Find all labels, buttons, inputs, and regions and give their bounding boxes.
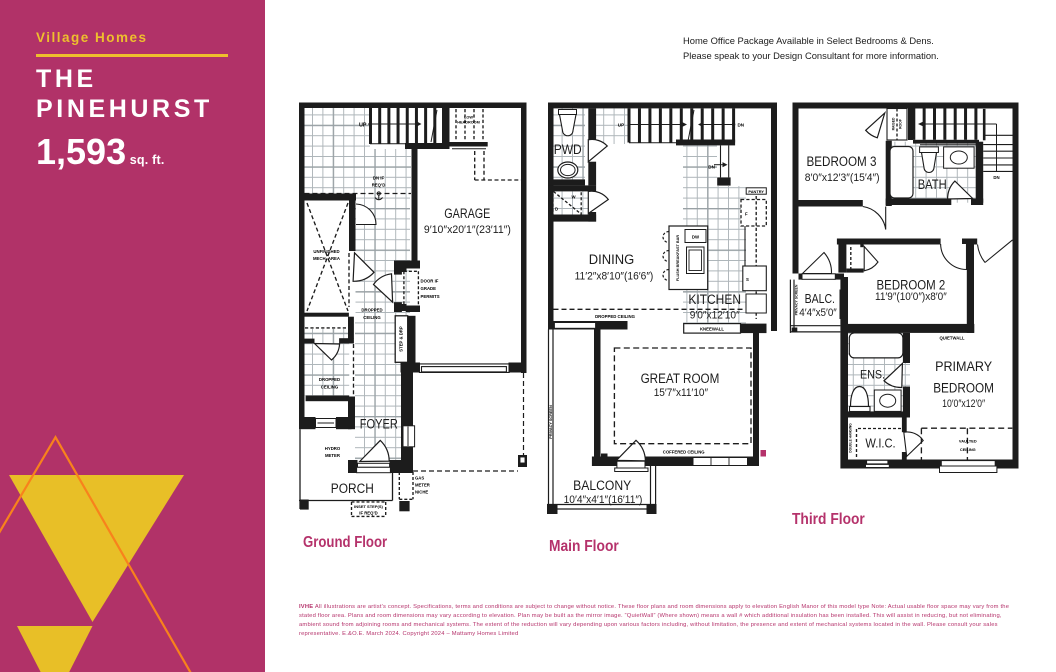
svg-text:BATH: BATH bbox=[918, 177, 947, 192]
svg-text:4′4″x5′0″: 4′4″x5′0″ bbox=[799, 307, 837, 319]
svg-text:ROOF: ROOF bbox=[899, 119, 903, 129]
svg-text:IF REQ’D: IF REQ’D bbox=[359, 511, 377, 516]
svg-text:D: D bbox=[555, 207, 558, 212]
svg-text:11′9″(10′0″)x8′0″: 11′9″(10′0″)x8′0″ bbox=[875, 291, 947, 303]
svg-text:FLUSH BREAKFAST BAR: FLUSH BREAKFAST BAR bbox=[676, 235, 680, 281]
svg-text:RAISED: RAISED bbox=[892, 117, 896, 130]
svg-text:UNFINISHED: UNFINISHED bbox=[313, 249, 339, 254]
svg-text:DN: DN bbox=[993, 175, 999, 180]
svg-text:LOW: LOW bbox=[464, 116, 473, 120]
svg-text:9′0″x12′10″: 9′0″x12′10″ bbox=[690, 310, 740, 322]
svg-text:S: S bbox=[746, 277, 749, 282]
svg-text:DOOR IF: DOOR IF bbox=[421, 278, 439, 283]
svg-text:DOUBLE HANGING: DOUBLE HANGING bbox=[849, 423, 853, 453]
svg-text:DN: DN bbox=[708, 165, 715, 170]
svg-text:GRADE: GRADE bbox=[421, 286, 437, 291]
svg-text:10′4″x4′1″(16′11″): 10′4″x4′1″(16′11″) bbox=[564, 494, 643, 506]
svg-text:CEILING: CEILING bbox=[363, 315, 381, 320]
svg-text:UP: UP bbox=[359, 123, 367, 129]
svg-text:PRIMARY: PRIMARY bbox=[935, 359, 992, 374]
svg-text:GAS: GAS bbox=[415, 476, 424, 481]
svg-text:UP: UP bbox=[618, 123, 624, 128]
svg-text:NICHE: NICHE bbox=[415, 490, 428, 495]
svg-text:QUIETWALL: QUIETWALL bbox=[939, 336, 964, 341]
svg-text:VAULTED: VAULTED bbox=[959, 439, 977, 444]
svg-text:DW: DW bbox=[692, 235, 700, 240]
svg-text:KITCHEN: KITCHEN bbox=[688, 292, 741, 307]
svg-text:BALC.: BALC. bbox=[805, 292, 835, 306]
svg-text:F: F bbox=[745, 212, 748, 217]
svg-text:MECH. AREA: MECH. AREA bbox=[313, 256, 340, 261]
svg-text:INSET STEP(S): INSET STEP(S) bbox=[354, 504, 383, 509]
svg-text:DROPPED: DROPPED bbox=[361, 308, 382, 313]
svg-text:GARAGE: GARAGE bbox=[444, 206, 490, 221]
svg-text:DROPPED CEILING: DROPPED CEILING bbox=[595, 314, 636, 319]
svg-text:10′0″x12′0″: 10′0″x12′0″ bbox=[942, 398, 985, 410]
svg-text:PRIVACY SCREEN: PRIVACY SCREEN bbox=[795, 284, 799, 315]
svg-text:DINING: DINING bbox=[589, 252, 635, 267]
svg-text:PRIVACY SCREEN: PRIVACY SCREEN bbox=[549, 405, 553, 439]
svg-text:GREAT ROOM: GREAT ROOM bbox=[641, 371, 720, 386]
svg-text:PWD: PWD bbox=[554, 142, 582, 157]
svg-text:BALCONY: BALCONY bbox=[573, 478, 631, 493]
svg-text:W.I.C.: W.I.C. bbox=[865, 437, 895, 451]
svg-text:COFFERED CEILING: COFFERED CEILING bbox=[663, 450, 705, 455]
svg-text:HEADROOM: HEADROOM bbox=[457, 121, 480, 125]
svg-text:BEDROOM 3: BEDROOM 3 bbox=[807, 154, 877, 169]
svg-text:HYDRO: HYDRO bbox=[325, 446, 341, 451]
svg-text:PORCH: PORCH bbox=[331, 481, 374, 496]
svg-text:11′2″x8′10″(16′6″): 11′2″x8′10″(16′6″) bbox=[575, 271, 654, 283]
svg-text:PANTRY: PANTRY bbox=[748, 189, 764, 194]
svg-text:DROPPED: DROPPED bbox=[319, 377, 340, 382]
svg-text:METER: METER bbox=[325, 453, 341, 458]
svg-text:CEILING: CEILING bbox=[321, 385, 339, 390]
svg-text:KNEEWALL: KNEEWALL bbox=[700, 326, 724, 331]
svg-text:DN IF: DN IF bbox=[373, 176, 385, 181]
svg-text:8′0″x12′3″(15′4″): 8′0″x12′3″(15′4″) bbox=[805, 172, 880, 184]
svg-text:CEILING: CEILING bbox=[960, 447, 976, 452]
svg-text:ENS.: ENS. bbox=[860, 368, 885, 382]
svg-text:METER: METER bbox=[415, 483, 430, 488]
svg-text:FOYER: FOYER bbox=[360, 417, 398, 432]
svg-text:9′10″x20′1″(23′11″): 9′10″x20′1″(23′11″) bbox=[424, 224, 511, 236]
svg-text:BEDROOM: BEDROOM bbox=[933, 381, 994, 396]
svg-text:DN: DN bbox=[737, 123, 744, 128]
svg-text:15′7″x11′10″: 15′7″x11′10″ bbox=[654, 387, 708, 399]
svg-text:REQ’D: REQ’D bbox=[372, 183, 386, 188]
svg-text:STEP & DRP: STEP & DRP bbox=[399, 326, 404, 352]
svg-text:PERMITS: PERMITS bbox=[421, 294, 440, 299]
